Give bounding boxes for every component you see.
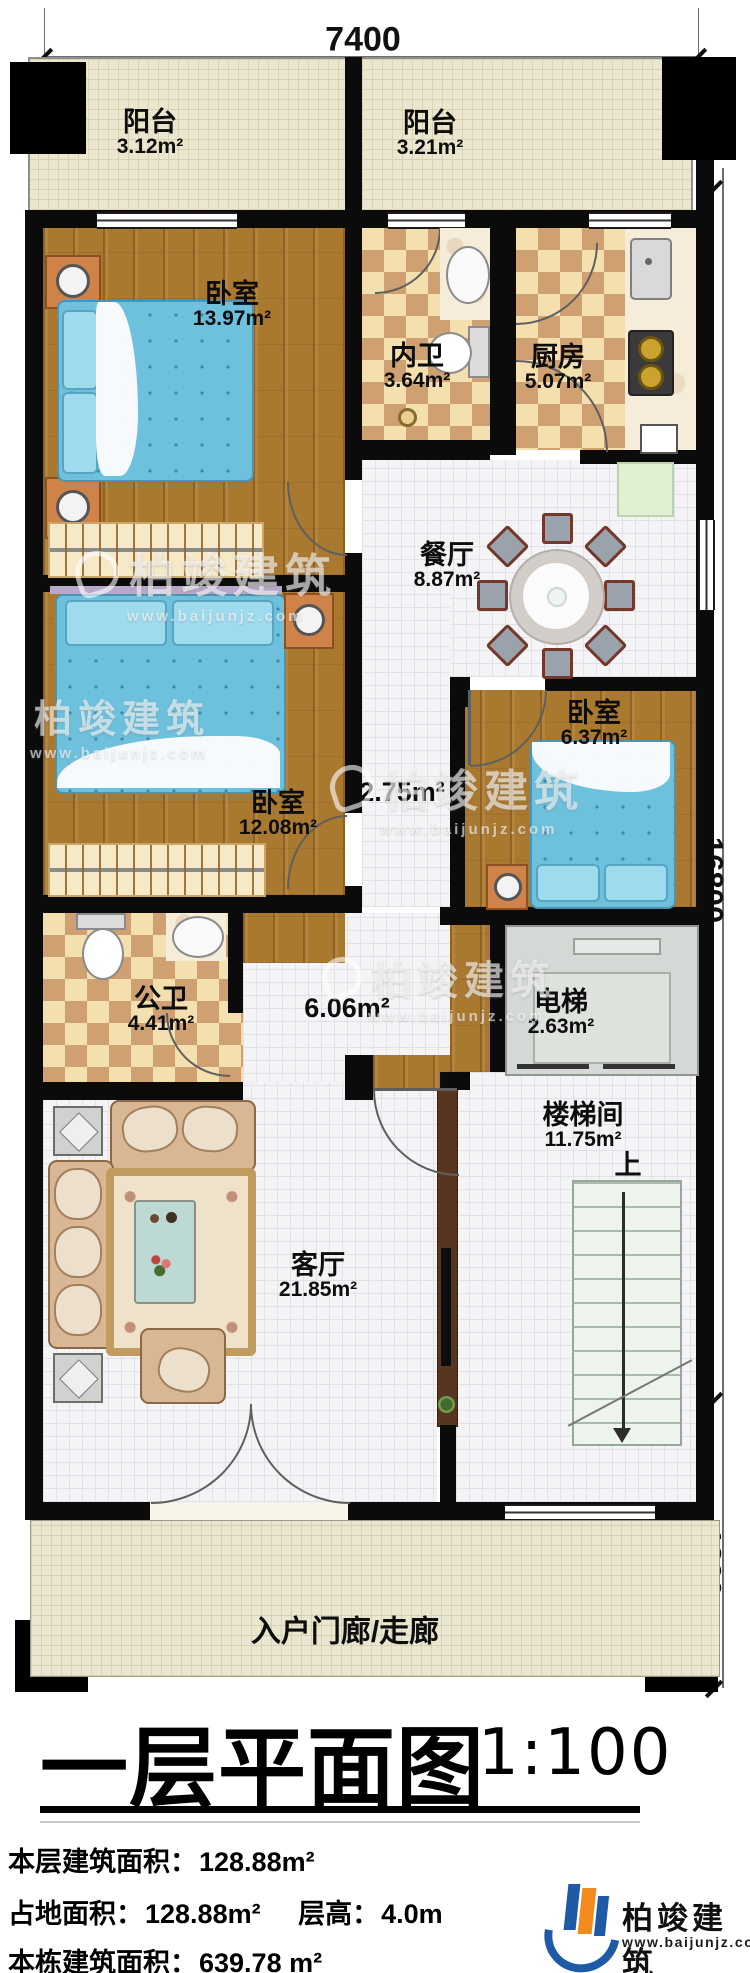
room-label-dining: 餐厅 8.87m² [414,541,481,591]
pillow [62,392,98,474]
title-rule-thin [40,1821,640,1823]
watermark-brand: 柏竣建筑 [384,755,584,819]
table-decor [150,1214,159,1223]
wall-innerbath-dining [362,440,490,460]
up-text: 上 [615,1151,642,1179]
wall-bed2-bath [25,895,362,913]
wall-bed1-bath [345,228,362,480]
room-area: 11.75m² [543,1129,624,1151]
watermark: 柏竣建筑 www.baijunjz.com [330,755,584,838]
stat-value: 128.88m² [145,1899,261,1929]
watermark: 柏竣建筑 www.baijunjz.com [75,540,337,625]
brand-name: 柏竣建筑 [622,1893,750,1973]
dim-line-right-main [722,168,724,1400]
wall-publicbath-bottom [25,1082,243,1100]
room-name: 阳台 [117,108,184,136]
room-area: 8.87m² [414,569,481,591]
room-area: 3.21m² [397,137,464,159]
watermark-logo-icon [69,545,124,600]
room-area: 6.37m² [561,727,628,749]
corridor-floor [362,592,450,907]
room-area: 21.85m² [279,1279,357,1301]
stat-line-floor-area: 本层建筑面积：128.88m² [8,1840,315,1879]
window [97,212,237,229]
sofa-cushion [54,1226,102,1278]
wall-living-stairhall [440,1425,456,1502]
wall-publicbath-right [228,913,243,1013]
room-area: 3.12m² [117,136,184,158]
outer-wall-right [696,160,714,1520]
wall-bed2-corridor [345,886,362,895]
door-leaf [373,1088,457,1091]
window [388,212,465,229]
wall-bed3-elevator [440,907,714,925]
elevator-door [603,1064,675,1069]
elevator-door [517,1064,589,1069]
room-area: 4.41m² [128,1013,195,1035]
porch-floor [30,1520,720,1677]
room-label-public-bath: 公卫 4.41m² [128,985,195,1035]
wardrobe [48,843,266,897]
wall-bed3-top [545,677,696,691]
window [505,1504,655,1521]
elevator-slot [573,938,661,955]
pillow [536,864,600,902]
room-name: 厨房 [525,343,592,371]
dim-ext-left [44,8,45,56]
stat-value: 4.0m [381,1899,443,1929]
sink-faucet [645,258,652,265]
room-name: 卧室 [193,280,271,308]
room-area: 12.08m² [239,817,317,839]
room-label-bedroom-right: 卧室 6.37m² [561,699,628,749]
sink [446,246,490,304]
tv [441,1248,451,1366]
wall-bed1-bath [345,553,362,575]
burner [638,336,664,362]
threshold-strip [373,1055,450,1089]
pillow [604,864,668,902]
clock-icon [56,490,90,524]
clock-icon [494,873,522,901]
stair-up-label: 上 [615,1151,642,1179]
watermark-url: www.baijunjz.com [30,745,210,762]
dining-table-center [547,587,567,607]
room-area: 5.07m² [525,371,592,393]
room-name: 内卫 [384,342,451,370]
room-name: 阳台 [397,109,464,137]
room-name: 楼梯间 [543,1101,624,1129]
side-table [53,1106,103,1156]
room-label-inner-bath: 内卫 3.64m² [384,342,451,392]
pillow [62,310,98,390]
stair-direction-line [622,1192,625,1428]
room-label-stair-hall: 楼梯间 11.75m² [543,1101,624,1151]
brand-url: www.baijunjz.com [622,1934,750,1950]
stat-line-footprint: 占地面积：128.88m² 层高：4.0m [8,1892,443,1931]
side-table [53,1353,103,1403]
staircase [572,1180,682,1446]
wall-innerbath-kitchen [490,228,516,455]
toilet-bowl [82,928,124,980]
kitchen-sink [630,238,672,300]
watermark: 柏竣建筑 www.baijunjz.com [322,948,556,1025]
table-lamp-icon [59,1112,98,1151]
watermark-url: www.baijunjz.com [380,821,584,838]
room-name: 公卫 [128,985,195,1013]
watermark-logo-icon [324,759,379,814]
room-area: 3.64m² [384,370,451,392]
dining-chair [542,513,573,544]
clock-icon [56,264,90,298]
entry-door-opening [150,1502,348,1520]
fridge [640,424,678,454]
room-label-bedroom-mid: 卧室 12.08m² [239,789,317,839]
window [698,520,715,610]
dim-top-label: 7400 [325,21,401,60]
door-leaf [468,690,471,765]
watermark: 柏竣建筑 www.baijunjz.com [0,688,210,762]
nightstand [486,864,528,910]
stat-label: 本栋建筑面积： [8,1948,197,1973]
outer-wall-left [25,210,43,1520]
dining-chair [604,580,635,611]
plant [438,1396,455,1413]
stat-label: 层高： [298,1899,379,1929]
column-top-left [10,62,86,154]
watermark-url: www.baijunjz.com [368,1008,556,1025]
column-top-right [662,57,736,160]
dining-chair [542,648,573,679]
table-decor [166,1212,177,1223]
floor-drain [398,408,417,427]
sink [172,916,224,958]
table-lamp-icon [59,1359,98,1398]
room-label-living: 客厅 21.85m² [279,1251,357,1301]
title-rule-thick [40,1806,640,1813]
dining-chair [477,580,508,611]
floor-plan-sheet: 7400 16800 1800 [0,0,750,1973]
stat-label: 占地面积： [8,1899,143,1929]
room-name: 入户门廊/走廊 [251,1616,439,1648]
balcony-divider-wall [345,57,362,212]
wall-hall-stub [345,1055,373,1100]
room-name: 客厅 [279,1251,357,1279]
room-label-bedroom-top: 卧室 13.97m² [193,280,271,330]
stat-value: 639.78 m² [199,1948,322,1973]
room-label-kitchen: 厨房 5.07m² [525,343,592,393]
drawing-scale: 1:100 [478,1716,672,1790]
stat-line-building-area: 本栋建筑面积：639.78 m² [8,1941,322,1973]
sofa-cushion [54,1168,102,1220]
room-name: 卧室 [561,699,628,727]
room-label-balcony-left: 阳台 3.12m² [117,108,184,158]
watermark-brand: 柏竣建筑 [372,948,556,1006]
room-label-balcony-right: 阳台 3.21m² [397,109,464,159]
stat-label: 本层建筑面积： [8,1847,197,1877]
watermark-brand: 柏竣建筑 [34,688,210,743]
watermark-logo-icon [317,952,367,1002]
table-flowers [148,1252,174,1278]
porch-label: 入户门廊/走廊 [251,1616,439,1648]
room-area: 13.97m² [193,308,271,330]
room-name: 餐厅 [414,541,481,569]
fridge-pad [617,462,674,517]
dim-ext-right [698,8,699,56]
watermark-brand: 柏竣建筑 [129,540,337,606]
window [589,212,671,229]
sofa-cushion [54,1284,102,1336]
room-name: 卧室 [239,789,317,817]
burner [638,364,664,390]
stair-arrow-down-icon [613,1428,631,1443]
watermark-logo-icon [0,692,29,740]
stat-value: 128.88m² [199,1847,315,1877]
watermark-url: www.baijunjz.com [127,608,337,625]
